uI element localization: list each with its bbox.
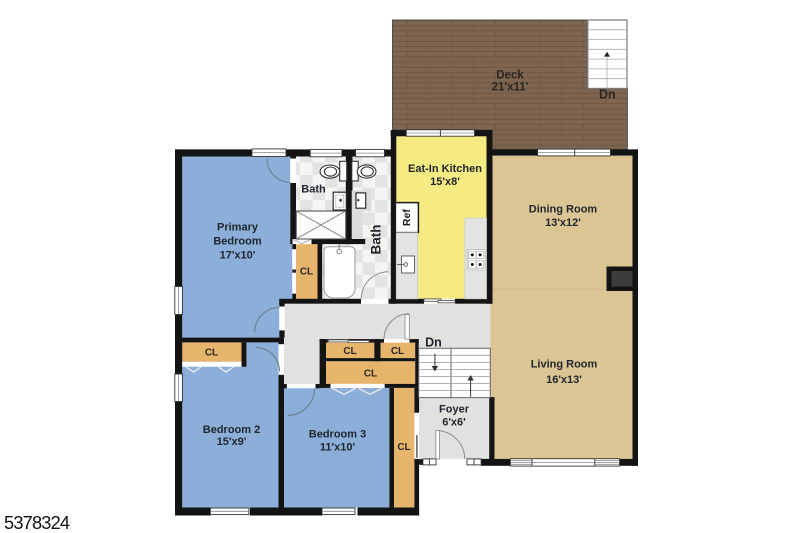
svg-text:15'x8': 15'x8' <box>430 176 460 188</box>
svg-text:13'x12': 13'x12' <box>545 217 581 229</box>
svg-text:Living Room: Living Room <box>531 359 598 371</box>
svg-text:CL: CL <box>205 348 218 359</box>
svg-text:21'x11': 21'x11' <box>492 82 529 94</box>
svg-text:Ref: Ref <box>401 209 413 226</box>
svg-text:Foyer: Foyer <box>439 404 470 416</box>
svg-text:Bath: Bath <box>369 225 384 255</box>
svg-text:Deck: Deck <box>496 70 524 82</box>
svg-text:Bedroom 3: Bedroom 3 <box>309 429 366 441</box>
svg-text:Bedroom 2: Bedroom 2 <box>203 424 260 436</box>
svg-text:Bedroom: Bedroom <box>213 236 262 248</box>
svg-text:Dining Room: Dining Room <box>529 204 598 216</box>
svg-text:17'x10': 17'x10' <box>220 250 256 262</box>
svg-text:16'x13': 16'x13' <box>546 374 582 386</box>
svg-text:Dn: Dn <box>425 336 442 350</box>
svg-text:11'x10': 11'x10' <box>320 442 356 454</box>
svg-text:6'x6': 6'x6' <box>442 417 466 429</box>
svg-text:Dn: Dn <box>599 88 616 102</box>
svg-text:15'x9': 15'x9' <box>217 436 247 448</box>
svg-text:CL: CL <box>364 369 377 380</box>
svg-text:CL: CL <box>397 442 410 453</box>
svg-text:CL: CL <box>343 346 356 357</box>
svg-text:Bath: Bath <box>301 184 326 196</box>
svg-text:5378324: 5378324 <box>4 513 70 533</box>
svg-text:Primary: Primary <box>217 222 259 234</box>
svg-text:CL: CL <box>391 346 404 357</box>
svg-text:CL: CL <box>300 267 313 278</box>
svg-text:Eat-In Kitchen: Eat-In Kitchen <box>408 163 482 175</box>
